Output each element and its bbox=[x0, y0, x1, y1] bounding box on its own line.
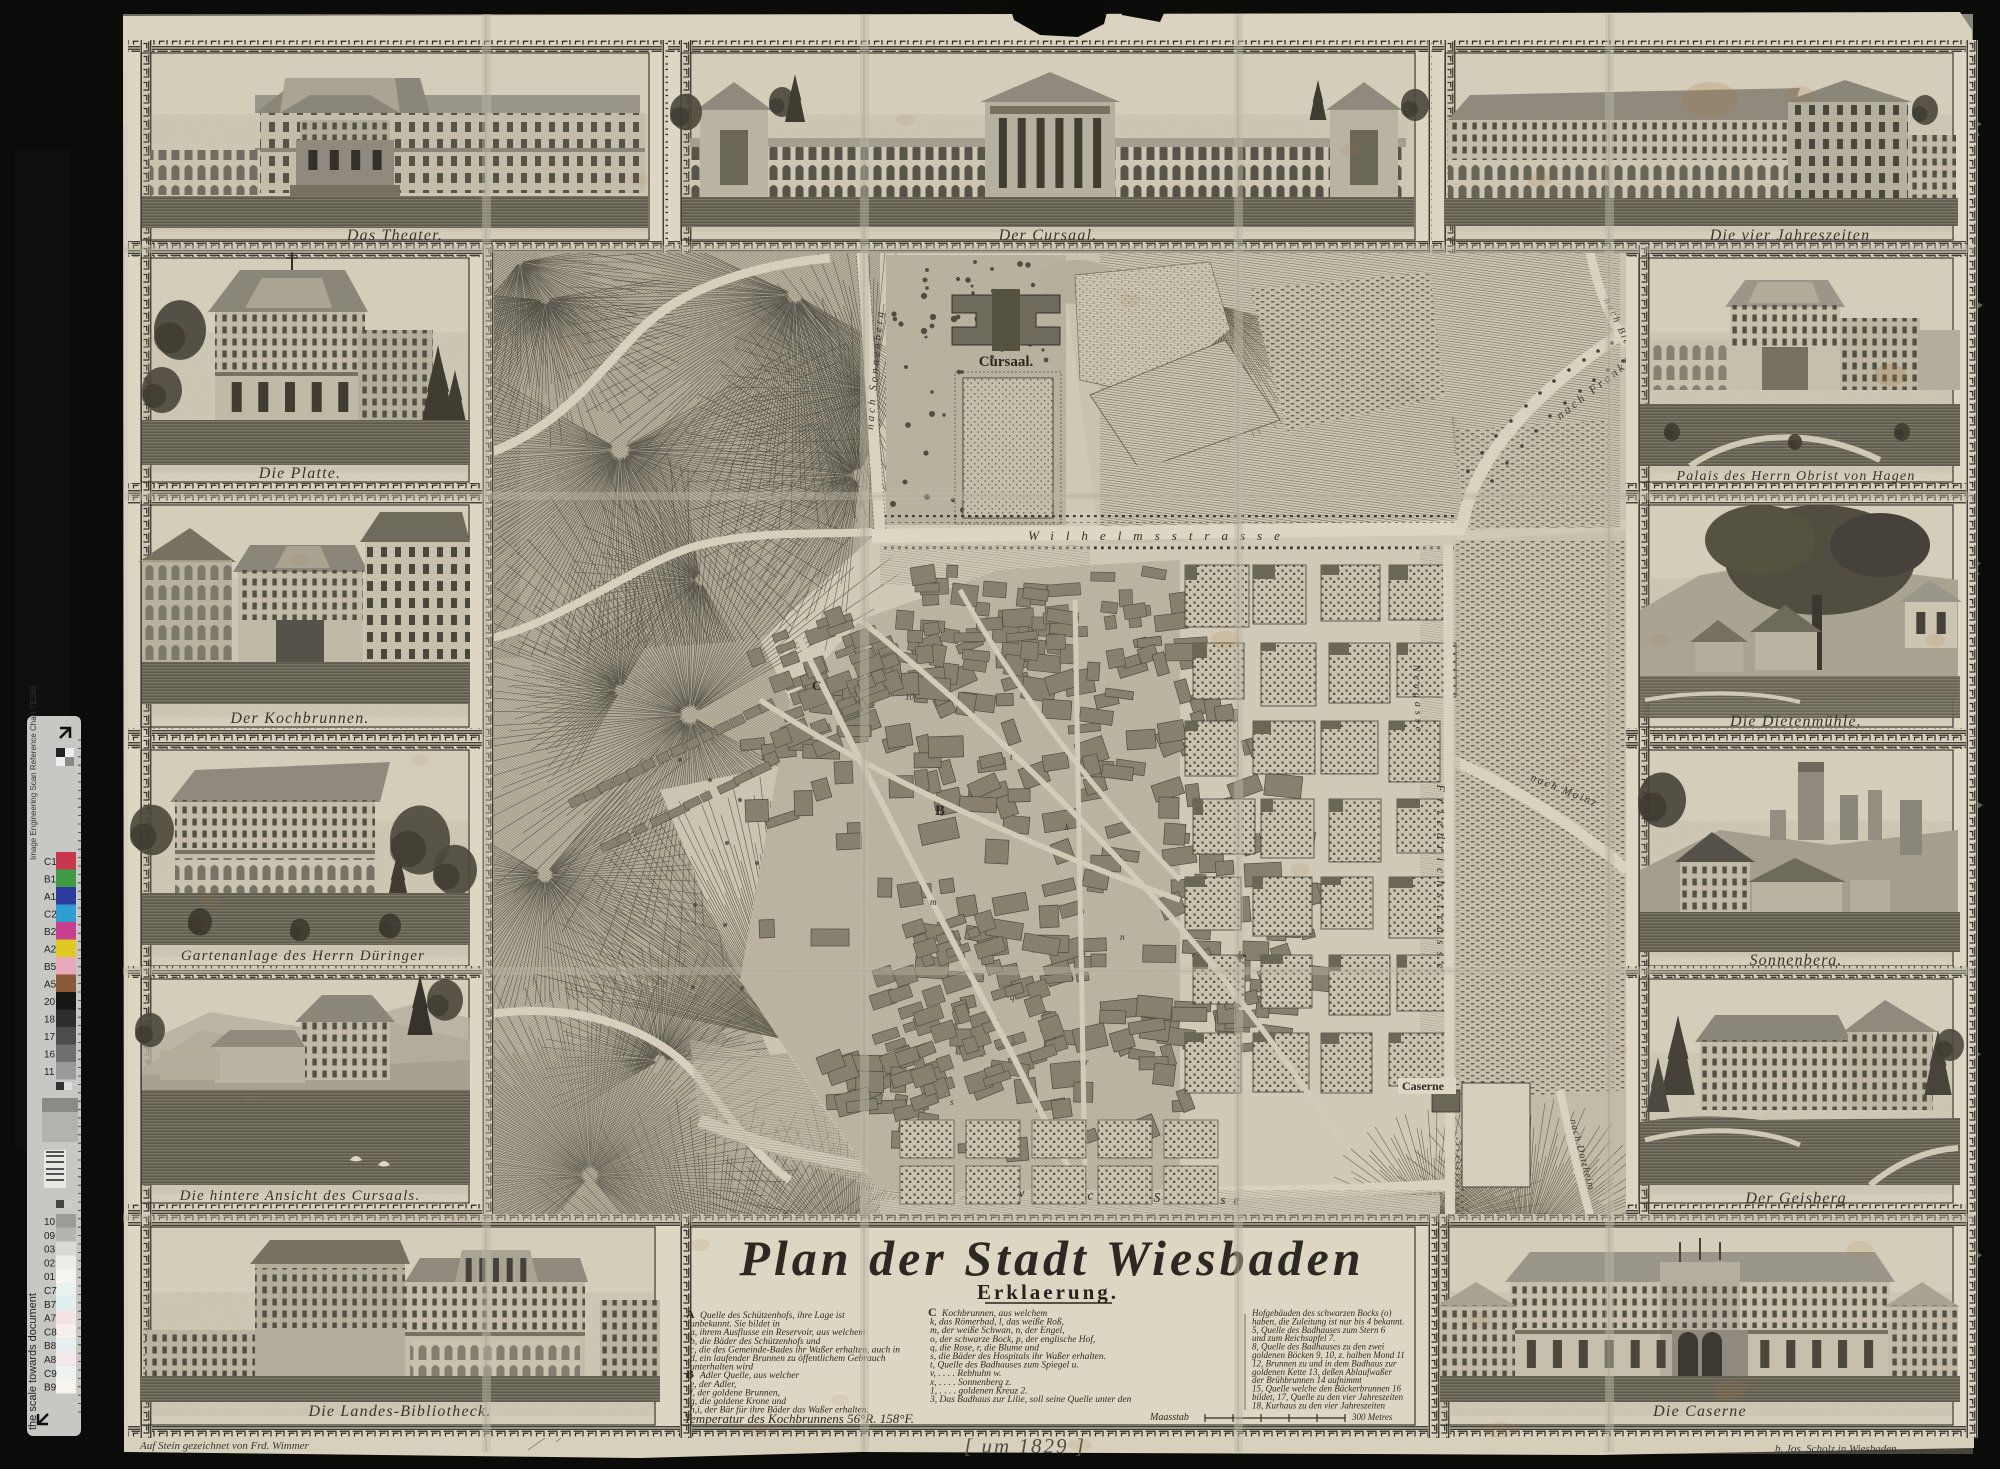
svg-text:02: 02 bbox=[44, 1258, 56, 1269]
svg-text:Auf Stein gezeichnet von Frd.: Auf Stein gezeichnet von Frd. Wimmer bbox=[139, 1440, 310, 1452]
svg-text:B1: B1 bbox=[44, 875, 57, 886]
svg-text:m: m bbox=[930, 897, 937, 907]
svg-text:r: r bbox=[1085, 1057, 1089, 1067]
svg-text:Palais des Herrn Obrist von Ha: Palais des Herrn Obrist von Hagen bbox=[1675, 469, 1915, 484]
svg-text:300 Metres: 300 Metres bbox=[1351, 1412, 1393, 1422]
svg-text:C9: C9 bbox=[44, 1369, 57, 1380]
svg-text:Image Engineering Scan Refere: Image Engineering Scan Reference Chart T… bbox=[29, 685, 38, 860]
svg-text:s: s bbox=[950, 1097, 954, 1107]
svg-text:01: 01 bbox=[44, 1272, 56, 1283]
svg-text:Friedrichstrasse: Friedrichstrasse bbox=[1434, 783, 1448, 975]
svg-text:Der Geisberg: Der Geisberg bbox=[1744, 1190, 1846, 1207]
svg-text:17: 17 bbox=[44, 1032, 56, 1043]
svg-text:Die Caserne: Die Caserne bbox=[1652, 1403, 1747, 1420]
svg-text:A7: A7 bbox=[44, 1314, 57, 1325]
svg-text:n: n bbox=[1120, 932, 1125, 942]
svg-text:C2: C2 bbox=[44, 910, 57, 921]
svg-text:Die Platte.: Die Platte. bbox=[258, 465, 342, 482]
svg-text:10: 10 bbox=[44, 1217, 56, 1228]
svg-text:11: 11 bbox=[44, 1067, 55, 1078]
svg-text:Cursaal.: Cursaal. bbox=[979, 354, 1034, 370]
svg-text:C: C bbox=[812, 678, 821, 693]
svg-text:[ um 1829 ]: [ um 1829 ] bbox=[964, 1434, 1086, 1458]
svg-text:the scale towards document: the scale towards document bbox=[27, 1293, 39, 1430]
svg-text:16: 16 bbox=[44, 1050, 56, 1061]
svg-text:Das Theater.: Das Theater. bbox=[346, 227, 443, 244]
svg-text:Temperatur des Kochbrunnens 56: Temperatur des Kochbrunnens 56°R. 158°F. bbox=[684, 1411, 914, 1426]
svg-text:18, Kurhaus zu den vier Jahres: 18, Kurhaus zu den vier Jahreszeiten bbox=[1252, 1400, 1385, 1410]
svg-text:B8: B8 bbox=[44, 1341, 57, 1352]
svg-text:Gartenanlage des Herrn Düringe: Gartenanlage des Herrn Düringer bbox=[181, 948, 425, 964]
svg-text:3, Das Badhaus zur Lilie, soll: 3, Das Badhaus zur Lilie, soll seine Que… bbox=[929, 1395, 1132, 1405]
svg-text:q: q bbox=[1010, 992, 1015, 1002]
svg-text:10: 10 bbox=[905, 692, 915, 702]
svg-text:B7: B7 bbox=[44, 1300, 57, 1311]
svg-text:Die vier Jahreszeiten: Die vier Jahreszeiten bbox=[1709, 227, 1871, 244]
svg-text:Die Dietenmühle.: Die Dietenmühle. bbox=[1729, 713, 1862, 730]
svg-text:Erklaerung.: Erklaerung. bbox=[977, 1280, 1119, 1304]
svg-text:Wilhelmsstrasse: Wilhelmsstrasse bbox=[1028, 528, 1292, 543]
svg-text:A5: A5 bbox=[44, 980, 57, 991]
svg-text:C8: C8 bbox=[44, 1327, 57, 1338]
svg-text:B9: B9 bbox=[44, 1383, 57, 1394]
svg-text:b. Jos. Scholz in Wiesbaden: b. Jos. Scholz in Wiesbaden bbox=[1775, 1443, 1897, 1455]
svg-text:A2: A2 bbox=[44, 945, 57, 956]
svg-text:09: 09 bbox=[44, 1231, 56, 1242]
svg-text:20: 20 bbox=[44, 997, 56, 1008]
svg-text:Plan der Stadt Wiesbaden: Plan der Stadt Wiesbaden bbox=[738, 1230, 1364, 1286]
svg-text:Die Landes-Bibliotheck.: Die Landes-Bibliotheck. bbox=[307, 1403, 491, 1420]
svg-text:Der Kochbrunnen.: Der Kochbrunnen. bbox=[229, 710, 369, 727]
svg-text:18: 18 bbox=[44, 1015, 56, 1026]
svg-text:B: B bbox=[935, 803, 945, 819]
svg-text:03: 03 bbox=[44, 1245, 56, 1256]
svg-text:B2: B2 bbox=[44, 927, 57, 938]
svg-text:Der Cursaal.: Der Cursaal. bbox=[998, 227, 1098, 244]
svg-text:Die hintere Ansicht des Cursaa: Die hintere Ansicht des Cursaals. bbox=[179, 1188, 421, 1204]
svg-text:Caserne: Caserne bbox=[1402, 1079, 1445, 1093]
svg-text:C7: C7 bbox=[44, 1286, 57, 1297]
svg-text:Maasstab: Maasstab bbox=[1149, 1412, 1189, 1423]
svg-text:B5: B5 bbox=[44, 962, 57, 973]
svg-text:A1: A1 bbox=[44, 892, 57, 903]
svg-text:A8: A8 bbox=[44, 1355, 57, 1366]
svg-text:C1: C1 bbox=[44, 857, 57, 868]
